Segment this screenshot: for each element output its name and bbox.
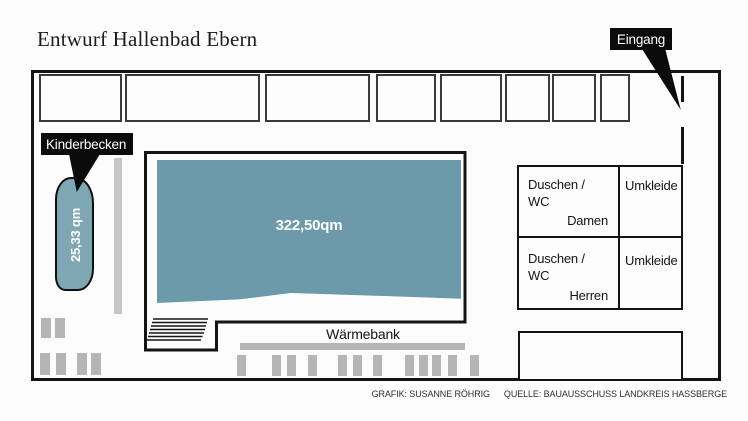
credit-grafik: GRAFIK: SUSANNE RÖHRIG xyxy=(372,389,490,399)
room-damen-name: Damen xyxy=(517,212,618,229)
room-herren-line2: WC xyxy=(528,267,585,284)
wall-pillar xyxy=(114,158,122,314)
bench-mark xyxy=(237,355,246,376)
entrance-wall-lower xyxy=(681,127,684,164)
rooms-divider-horizontal xyxy=(519,236,681,238)
room-damen-line2: WC xyxy=(528,193,585,210)
bench-mark xyxy=(77,353,87,375)
bench-mark xyxy=(448,355,457,376)
bench-mark xyxy=(432,355,441,376)
waermebank-bench xyxy=(240,343,465,350)
room-duschen-wc-damen: Duschen / WC xyxy=(528,176,585,210)
room-umkleide-bottom: Umkleide xyxy=(625,252,678,269)
bench-mark xyxy=(91,353,101,375)
waermebank-label: Wärmebank xyxy=(293,326,433,342)
eingang-callout: Eingang xyxy=(610,28,672,50)
credit-quelle: QUELLE: BAUAUSSCHUSS LANDKREIS HASSBERGE xyxy=(504,389,727,399)
kinderbecken-callout-label: Kinderbecken xyxy=(46,137,126,152)
bench-mark xyxy=(40,353,50,375)
entrance-wall-upper xyxy=(681,76,684,102)
bench-mark xyxy=(419,355,428,376)
bench-mark xyxy=(308,355,317,376)
bench-mark xyxy=(287,355,296,376)
bottom-right-room xyxy=(518,331,683,381)
room-damen-line1: Duschen / xyxy=(528,176,585,193)
bench-mark xyxy=(41,318,51,338)
bench-mark xyxy=(353,355,362,376)
bench-mark xyxy=(55,318,65,338)
main-pool: 322,50qm xyxy=(157,160,461,303)
room-herren-line1: Duschen / xyxy=(528,250,585,267)
bench-mark xyxy=(56,353,66,375)
bench-mark xyxy=(272,355,281,376)
kinderbecken-callout: Kinderbecken xyxy=(41,133,133,155)
pool-stairs-icon xyxy=(147,319,208,340)
room-herren-name: Herren xyxy=(517,287,618,304)
bench-mark xyxy=(405,355,414,376)
bench-mark xyxy=(373,355,382,376)
eingang-callout-label: Eingang xyxy=(617,32,665,47)
room-umkleide-top: Umkleide xyxy=(625,177,678,194)
kids-pool-area-label: 25,33 qm xyxy=(35,207,115,263)
room-duschen-wc-herren: Duschen / WC xyxy=(528,250,585,284)
bench-mark xyxy=(338,355,347,376)
floorplan-infographic: Entwurf Hallenbad Ebern 322,50qm 25,33 q… xyxy=(0,0,748,421)
bench-mark xyxy=(470,355,479,376)
main-pool-area-label: 322,50qm xyxy=(276,217,343,234)
credit-line: GRAFIK: SUSANNE RÖHRIG QUELLE: BAUAUSSCH… xyxy=(372,389,727,399)
